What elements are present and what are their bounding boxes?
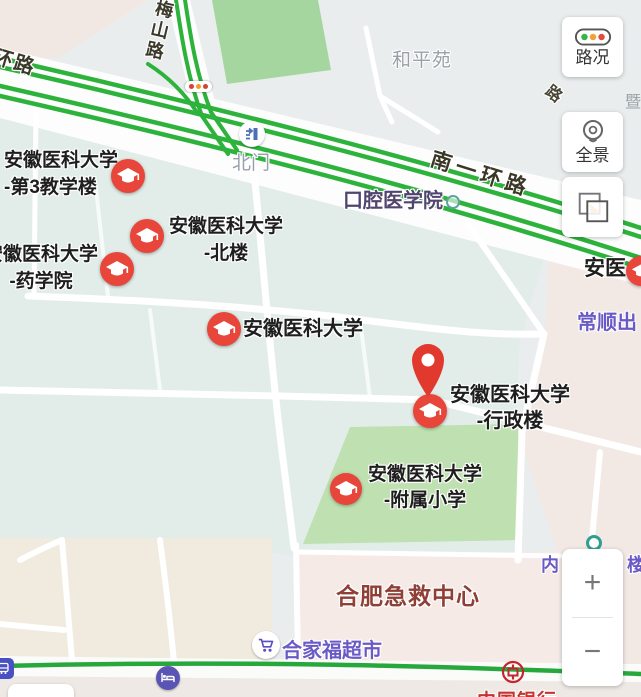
university-marker-icon[interactable] [207, 312, 241, 346]
traffic-button-label: 路况 [576, 49, 610, 67]
zoom-control: + − [562, 549, 623, 686]
marker-label-line2: -附属小学 [364, 488, 486, 514]
transit-icon[interactable] [0, 658, 14, 679]
label-emergency-center[interactable]: 合肥急救中心 [336, 577, 480, 611]
label-supermarket[interactable]: 合家福超市 [282, 634, 382, 663]
label-north-gate: 北门 [232, 148, 270, 175]
marker-label-line1: 安徽医科大学 [364, 462, 486, 488]
marker-label-line2: -行政楼 [447, 408, 573, 434]
label-hepingyuan: 和平苑 [392, 45, 452, 72]
marker-label-line1: 安徽医科大学 [4, 147, 118, 174]
university-marker-icon[interactable] [130, 219, 164, 253]
bank-of-china-logo-icon[interactable] [501, 660, 525, 689]
panorama-icon [579, 119, 607, 145]
layers-button[interactable] [562, 177, 623, 237]
marker-label-line2: -第3教学楼 [4, 174, 118, 201]
zoom-out-button[interactable]: − [562, 618, 623, 686]
map-canvas[interactable] [0, 0, 641, 697]
layers-icon [574, 188, 612, 226]
label-bank[interactable]: 中国银行 [477, 686, 557, 697]
panorama-button-label: 全景 [576, 147, 610, 165]
edge-label-partial: 暨 [625, 88, 641, 112]
label-building-left: 内 [541, 551, 559, 577]
traffic-button[interactable]: 路况 [562, 17, 623, 77]
park-area [212, 0, 331, 84]
southwest-block [0, 538, 272, 668]
marker-label-line1: 安徽医科大学 [243, 316, 363, 343]
map-screenshot: 环路 梅山路 南一环路 路 暨 和平苑 口腔医学院 常顺出 内 楼 合肥急救中心… [0, 0, 641, 697]
marker-label-line2: -药学院 [0, 268, 100, 295]
hotel-icon[interactable] [156, 666, 180, 690]
supermarket-cart-icon[interactable] [252, 631, 280, 659]
marker-label-line1: 安徽医科大学 [0, 241, 100, 268]
partial-label-bubble [8, 684, 74, 697]
poi-ring-icon [446, 195, 460, 209]
north-gate-icon[interactable] [239, 121, 265, 147]
label-changshun[interactable]: 常顺出 [577, 306, 637, 335]
university-marker-icon[interactable] [330, 473, 362, 505]
stomatology-text: 口腔医学院 [343, 190, 443, 212]
university-marker-icon[interactable] [100, 252, 134, 286]
label-building-right: 楼 [627, 551, 641, 577]
traffic-signal-icon [185, 81, 212, 92]
panorama-button[interactable]: 全景 [562, 112, 623, 172]
marker-label-line1: 安徽医科大学 [165, 213, 287, 240]
label-stomatology-college[interactable]: 口腔医学院 [343, 184, 460, 213]
zoom-in-button[interactable]: + [562, 549, 623, 617]
traffic-light-icon [574, 27, 612, 47]
marker-label-line2: -北楼 [165, 240, 287, 267]
marker-label-line1: 安徽医科大学 [447, 382, 573, 408]
selected-pin-icon[interactable] [408, 342, 448, 404]
university-marker-icon[interactable] [111, 159, 145, 193]
